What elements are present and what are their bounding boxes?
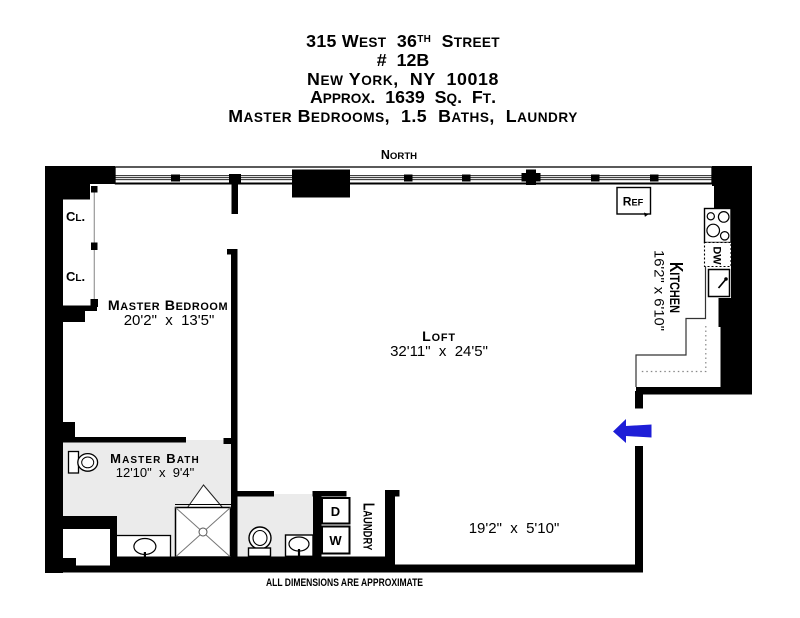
svg-text:W: W bbox=[329, 533, 342, 548]
svg-text:DW: DW bbox=[711, 246, 723, 265]
svg-text:NORTH: NORTH bbox=[381, 148, 417, 162]
svg-text:12'10" x 9'4": 12'10" x 9'4" bbox=[116, 465, 195, 480]
svg-text:KITCHEN: KITCHEN bbox=[666, 262, 686, 313]
svg-text:19'2" x 5'10": 19'2" x 5'10" bbox=[469, 520, 560, 537]
svg-text:CL.: CL. bbox=[66, 269, 85, 284]
svg-text:CL.: CL. bbox=[66, 209, 85, 224]
svg-text:ALL DIMENSIONS ARE APPROXIMATE: ALL DIMENSIONS ARE APPROXIMATE bbox=[266, 577, 423, 589]
svg-text:REF: REF bbox=[623, 195, 644, 209]
svg-text:LAUNDRY: LAUNDRY bbox=[360, 503, 377, 551]
svg-text:D: D bbox=[331, 504, 340, 519]
svg-text:16'2" x 6'10": 16'2" x 6'10" bbox=[652, 250, 668, 331]
svg-text:32'11" x 24'5": 32'11" x 24'5" bbox=[390, 343, 488, 360]
svg-text:20'2" x 13'5": 20'2" x 13'5" bbox=[124, 312, 215, 329]
